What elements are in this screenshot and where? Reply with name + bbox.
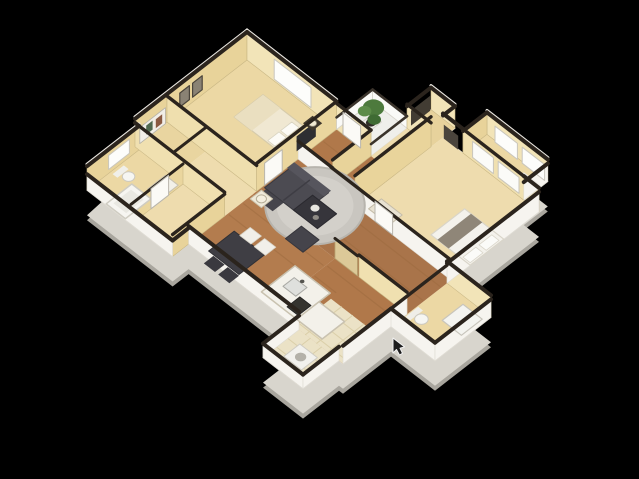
table-lamp xyxy=(256,195,266,203)
coffee-table-tray xyxy=(310,205,319,212)
plant-leaves-2 xyxy=(358,106,372,117)
washer-door xyxy=(295,353,306,362)
canvas-background xyxy=(0,0,639,479)
kitchen-faucet xyxy=(300,280,305,284)
coffee-table-bowl xyxy=(313,215,319,220)
plant-leaves-3 xyxy=(367,114,381,125)
toilet-bowl xyxy=(122,172,134,182)
toilet2-bowl xyxy=(415,314,429,325)
floorplan-3d-render[interactable] xyxy=(0,0,639,479)
